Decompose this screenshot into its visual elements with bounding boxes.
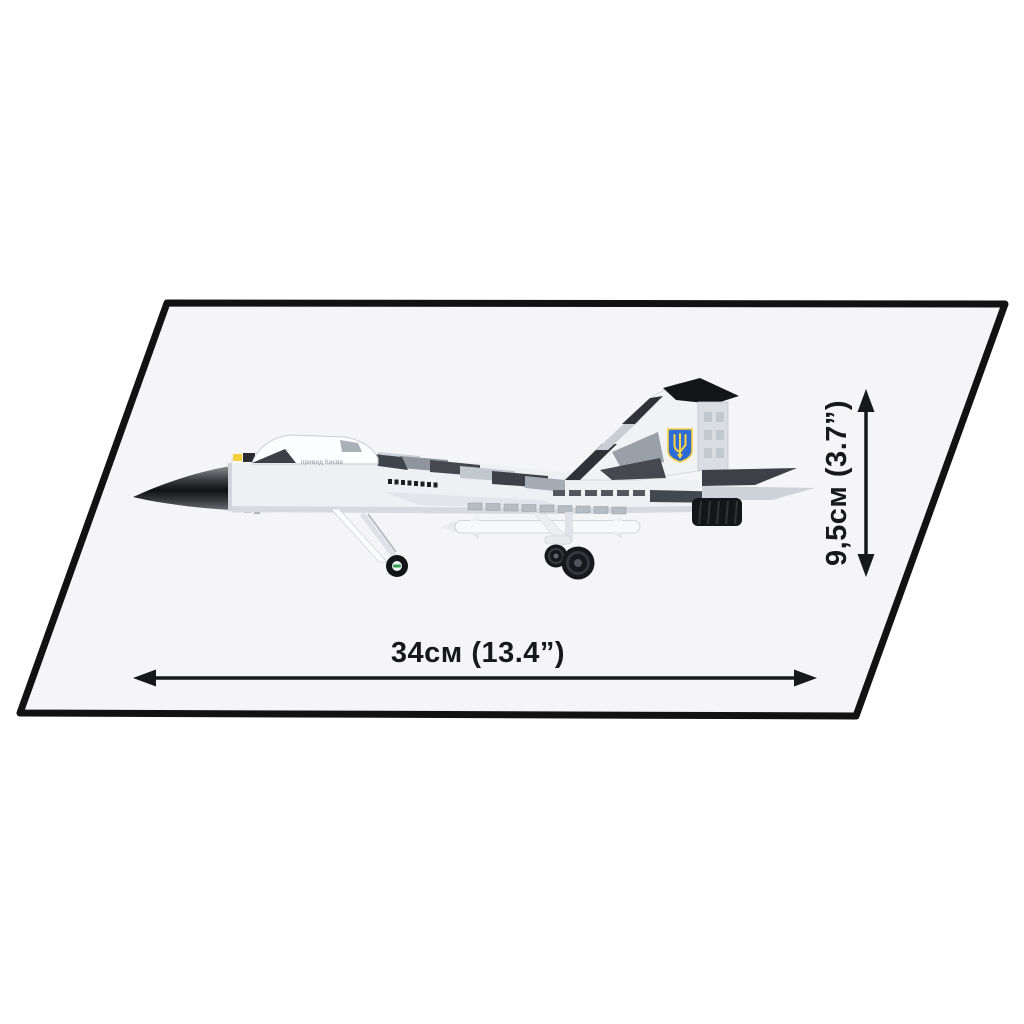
trident-shield-icon xyxy=(668,429,692,462)
width-label: 34см (13.4”) xyxy=(391,637,565,669)
height-dimension: 9,5см (3.7”) xyxy=(821,389,875,577)
engine-nozzle xyxy=(692,498,742,526)
product-dimension-diagram: привид Києва 34см (13.4”) 9,5см (3.7”) xyxy=(0,0,1024,1024)
diagram-canvas: привид Києва 34см (13.4”) 9,5см (3.7”) xyxy=(0,0,1024,1024)
main-wheel-outer xyxy=(562,547,595,580)
fuselage-marking: привид Києва xyxy=(301,459,344,466)
rudder xyxy=(698,402,728,470)
sensor-brick-yellow xyxy=(233,454,242,461)
front-wheel xyxy=(386,555,408,577)
height-label: 9,5см (3.7”) xyxy=(821,400,853,566)
